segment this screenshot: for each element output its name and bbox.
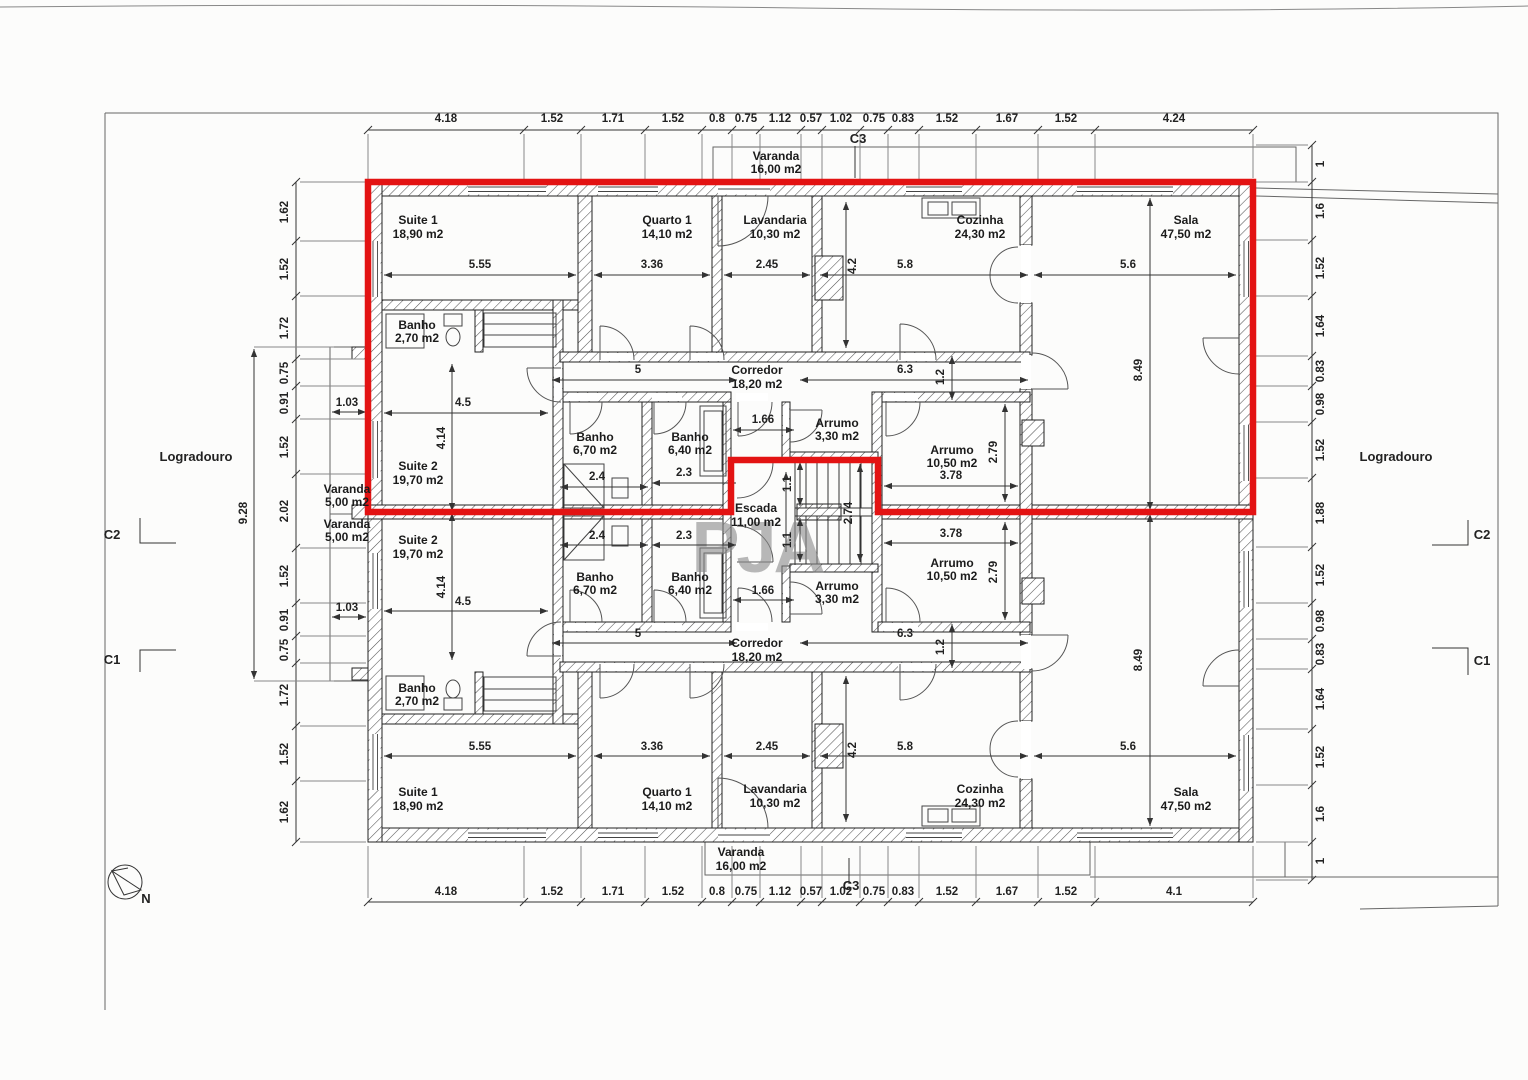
dim-top-9: 0.75	[863, 113, 886, 125]
dim-shaft-top: 4.2	[847, 258, 859, 274]
window	[1241, 735, 1252, 791]
dim-left-5: 1.52	[279, 436, 291, 458]
room-lavandaria-bottom-name: Lavandaria	[743, 782, 807, 796]
room-cozinha-bottom-area: 24,30 m2	[955, 796, 1006, 810]
window	[468, 830, 546, 841]
dim-balcony-left-top: 1.03	[336, 397, 358, 409]
toilet	[612, 478, 628, 498]
dim-stair-w-bottom: 1.1	[782, 531, 794, 548]
section-c1-left: C1	[104, 652, 121, 667]
dim-corridor-w-top: 1.2	[935, 369, 947, 385]
room-varanda-left-bottom-area: 5,00 m2	[325, 530, 369, 544]
dim-stair-l: 2.74	[843, 501, 855, 524]
scan-edge-line	[0, 5, 1528, 10]
room-varanda-left-top-area: 5,00 m2	[325, 495, 369, 509]
room-cozinha-top-area: 24,30 m2	[955, 227, 1006, 241]
dim-sala-d-bottom: 8.49	[1133, 649, 1145, 671]
room-cozinha-bottom-name: Cozinha	[957, 782, 1004, 796]
room-corredor-top-area: 18,20 m2	[732, 377, 783, 391]
dim-suite2-w-bottom: 4.5	[455, 596, 472, 608]
window	[1241, 551, 1252, 607]
dim-lobby-bottom: 1.66	[752, 585, 774, 597]
dim-right-2: 1.52	[1315, 257, 1327, 279]
dim-banho640-w-bottom: 2.3	[676, 530, 692, 542]
dim-right-4: 0.83	[1315, 360, 1327, 382]
dim-quarto1-w-top: 3.36	[641, 259, 663, 271]
dim-left-10: 1.72	[279, 684, 291, 706]
dim-right-12: 1.52	[1315, 746, 1327, 768]
room-corredor-bottom-name: Corredor	[731, 636, 783, 650]
dim-left-7: 1.52	[279, 565, 291, 587]
dim-top-5: 0.75	[735, 113, 758, 125]
room-suite2-bottom-area: 19,70 m2	[393, 547, 444, 561]
dim-left-8: 0.91	[279, 608, 291, 631]
window	[906, 830, 962, 841]
room-corredor-top-name: Corredor	[731, 363, 783, 377]
window	[1077, 830, 1173, 841]
room-varanda-top-area: 16,00 m2	[751, 162, 802, 176]
dim-top-1: 1.52	[541, 113, 563, 125]
dim-bottom-1: 1.52	[541, 886, 563, 898]
dim-quarto1-w-bottom: 3.36	[641, 741, 663, 753]
room-arrumo330-bottom-name: Arrumo	[815, 579, 858, 593]
room-banho640-bottom-name: Banho	[671, 570, 708, 584]
dim-shaft-bottom: 4.2	[847, 742, 859, 758]
dim-top-7: 0.57	[800, 113, 822, 125]
dim-bottom-2: 1.71	[602, 886, 625, 898]
dim-banho640-w-top: 2.3	[676, 467, 692, 479]
room-varanda-bottom-name: Varanda	[718, 845, 765, 859]
room-suite1-bottom-name: Suite 1	[398, 785, 438, 799]
dim-corridor63-bottom: 6.3	[897, 628, 913, 640]
room-varanda-bottom-area: 16,00 m2	[716, 859, 767, 873]
window	[370, 734, 381, 790]
dim-cozinha-w-top: 5.8	[897, 259, 914, 271]
dim-bottom-7: 0.57	[800, 886, 822, 898]
room-suite1-top-area: 18,90 m2	[393, 227, 444, 241]
dim-bottom-9: 0.75	[863, 886, 886, 898]
dim-right-0: 1	[1315, 160, 1327, 167]
dim-bottom-0: 4.18	[435, 886, 458, 898]
room-quarto1-top-area: 14,10 m2	[642, 227, 693, 241]
window	[370, 553, 381, 609]
dim-bottom-11: 1.52	[936, 886, 958, 898]
dim-right-9: 0.98	[1315, 609, 1327, 632]
dim-stair-w-top: 1.1	[782, 475, 794, 492]
toilet	[446, 328, 460, 346]
dim-right-10: 0.83	[1315, 643, 1327, 665]
room-suite2-top-name: Suite 2	[398, 459, 438, 473]
dim-left-6: 2.02	[279, 500, 291, 522]
closet	[484, 313, 556, 347]
dim-bottom-6: 1.12	[769, 886, 791, 898]
room-banho670-bottom-name: Banho	[576, 570, 613, 584]
room-arrumo1050-bottom-area: 10,50 m2	[927, 569, 978, 583]
room-banho-suite1-top-area: 2,70 m2	[395, 331, 439, 345]
room-sala-bottom-area: 47,50 m2	[1161, 799, 1212, 813]
dim-bottom-14: 4.1	[1166, 886, 1183, 898]
room-corredor-bottom-area: 18,20 m2	[732, 650, 783, 664]
dim-arrumo-d-bottom: 2.79	[988, 561, 1000, 583]
room-suite2-top-area: 19,70 m2	[393, 473, 444, 487]
dim-arrumo-d-top: 2.79	[988, 441, 1000, 463]
floorplan-scan: PJA N	[0, 0, 1528, 1080]
dim-cozinha-w-bottom: 5.8	[897, 741, 914, 753]
dim-bottom-10: 0.83	[892, 886, 914, 898]
dim-top-4: 0.8	[709, 113, 726, 125]
dim-balcony-left-bottom: 1.03	[336, 602, 358, 614]
dim-sala-d-top: 8.49	[1133, 359, 1145, 381]
room-arrumo330-top-name: Arrumo	[815, 416, 858, 430]
room-cozinha-top-name: Cozinha	[957, 213, 1004, 227]
dim-right-8: 1.52	[1315, 564, 1327, 586]
dim-banho670-w-bottom: 2.4	[589, 530, 606, 542]
room-suite2-bottom-name: Suite 2	[398, 533, 438, 547]
dim-right-6: 1.52	[1315, 439, 1327, 461]
toilet	[612, 526, 628, 546]
sink	[444, 314, 462, 326]
dim-arrumo-w-bottom: 3.78	[940, 528, 963, 540]
room-lavandaria-top-name: Lavandaria	[743, 213, 807, 227]
room-sala-top-name: Sala	[1174, 213, 1199, 227]
dim-right-5: 0.98	[1315, 392, 1327, 415]
dim-top-0: 4.18	[435, 113, 458, 125]
dim-lavandaria-w-top: 2.45	[756, 259, 779, 271]
room-varanda-top-name: Varanda	[753, 149, 800, 163]
dim-left-1: 1.52	[279, 258, 291, 280]
dim-top-10: 0.83	[892, 113, 914, 125]
room-banho-suite1-bottom-name: Banho	[398, 681, 435, 695]
room-escada-name: Escada	[735, 501, 777, 515]
dim-top-11: 1.52	[936, 113, 958, 125]
dim-right-3: 1.64	[1315, 314, 1327, 337]
section-c1-right: C1	[1474, 653, 1491, 668]
room-banho640-top-area: 6,40 m2	[668, 443, 712, 457]
room-banho670-top-area: 6,70 m2	[573, 443, 617, 457]
room-quarto1-top-name: Quarto 1	[642, 213, 692, 227]
room-banho640-top-name: Banho	[671, 430, 708, 444]
section-c3-top: C3	[850, 131, 867, 146]
dim-corridor5-bottom: 5	[635, 628, 642, 640]
compass-north: N	[108, 865, 151, 906]
room-lavandaria-bottom-area: 10,30 m2	[750, 796, 801, 810]
dim-top-3: 1.52	[662, 113, 684, 125]
dim-left-12: 1.62	[279, 801, 291, 823]
dim-top-12: 1.67	[996, 113, 1018, 125]
dim-top-2: 1.71	[602, 113, 625, 125]
dim-suite1-w-top: 5.55	[469, 259, 492, 271]
logradouro-right: Logradouro	[1360, 449, 1433, 464]
room-arrumo330-bottom-area: 3,30 m2	[815, 592, 859, 606]
dim-suite1-w-bottom: 5.55	[469, 741, 492, 753]
dim-right-7: 1.88	[1315, 501, 1327, 524]
dim-top-14: 4.24	[1163, 113, 1186, 125]
room-banho640-bottom-area: 6,40 m2	[668, 583, 712, 597]
dim-left-3: 0.75	[279, 361, 291, 384]
closet	[484, 677, 556, 711]
room-lavandaria-top-area: 10,30 m2	[750, 227, 801, 241]
dim-sala-w-top: 5.6	[1120, 259, 1136, 271]
room-banho-suite1-top-name: Banho	[398, 318, 435, 332]
dim-suite2-d-top: 4.14	[436, 426, 448, 449]
room-escada-area: 11,00 m2	[731, 515, 781, 529]
dim-top-13: 1.52	[1055, 113, 1077, 125]
dim-corridor63-top: 6.3	[897, 364, 913, 376]
section-c3-bottom: C3	[843, 878, 860, 893]
room-suite1-bottom-area: 18,90 m2	[393, 799, 444, 813]
dim-corridor5-top: 5	[635, 364, 642, 376]
dim-left-4: 0.91	[279, 391, 291, 414]
room-quarto1-bottom-name: Quarto 1	[642, 785, 692, 799]
dim-left-total: 9.28	[238, 501, 250, 524]
room-arrumo1050-top-name: Arrumo	[930, 443, 973, 457]
balcony-door	[718, 830, 770, 841]
dim-sala-w-bottom: 5.6	[1120, 741, 1136, 753]
room-banho670-top-name: Banho	[576, 430, 613, 444]
room-banho670-bottom-area: 6,70 m2	[573, 583, 617, 597]
north-label: N	[141, 891, 150, 906]
room-suite1-top-name: Suite 1	[398, 213, 438, 227]
dim-right-11: 1.64	[1315, 687, 1327, 710]
dim-left-2: 1.72	[279, 317, 291, 339]
dim-lavandaria-w-bottom: 2.45	[756, 741, 779, 753]
dim-bottom-3: 1.52	[662, 886, 684, 898]
dim-suite2-w-top: 4.5	[455, 397, 472, 409]
room-sala-bottom-name: Sala	[1174, 785, 1199, 799]
dim-left-0: 1.62	[279, 201, 291, 223]
dim-bottom-5: 0.75	[735, 886, 758, 898]
section-c2-right: C2	[1474, 527, 1491, 542]
dim-left-9: 0.75	[279, 638, 291, 661]
dim-suite2-d-bottom: 4.14	[436, 575, 448, 598]
sink	[444, 698, 462, 710]
dim-corridor-w-bottom: 1.2	[935, 639, 947, 655]
room-varanda-left-bottom-name: Varanda	[324, 517, 371, 531]
dim-top-8: 1.02	[830, 113, 852, 125]
dim-bottom-13: 1.52	[1055, 886, 1077, 898]
window	[598, 830, 658, 841]
dim-bottom-12: 1.67	[996, 886, 1018, 898]
dim-bottom-4: 0.8	[709, 886, 726, 898]
room-banho-suite1-bottom-area: 2,70 m2	[395, 694, 439, 708]
dim-top-6: 1.12	[769, 113, 791, 125]
room-arrumo1050-top-area: 10,50 m2	[927, 456, 978, 470]
section-c2-left: C2	[104, 527, 121, 542]
dim-arrumo-w-top: 3.78	[940, 470, 963, 482]
logradouro-left: Logradouro	[160, 449, 233, 464]
dim-right-13: 1.6	[1315, 806, 1327, 822]
dim-left-11: 1.52	[279, 743, 291, 765]
room-varanda-left-top-name: Varanda	[324, 482, 371, 496]
room-quarto1-bottom-area: 14,10 m2	[642, 799, 693, 813]
room-arrumo1050-bottom-name: Arrumo	[930, 556, 973, 570]
dim-right-14: 1	[1315, 857, 1327, 864]
dim-right-1: 1.6	[1315, 203, 1327, 219]
room-sala-top-area: 47,50 m2	[1161, 227, 1212, 241]
room-arrumo330-top-area: 3,30 m2	[815, 429, 859, 443]
dim-banho670-w-top: 2.4	[589, 471, 606, 483]
dim-lobby-top: 1.66	[752, 414, 774, 426]
toilet	[446, 680, 460, 698]
